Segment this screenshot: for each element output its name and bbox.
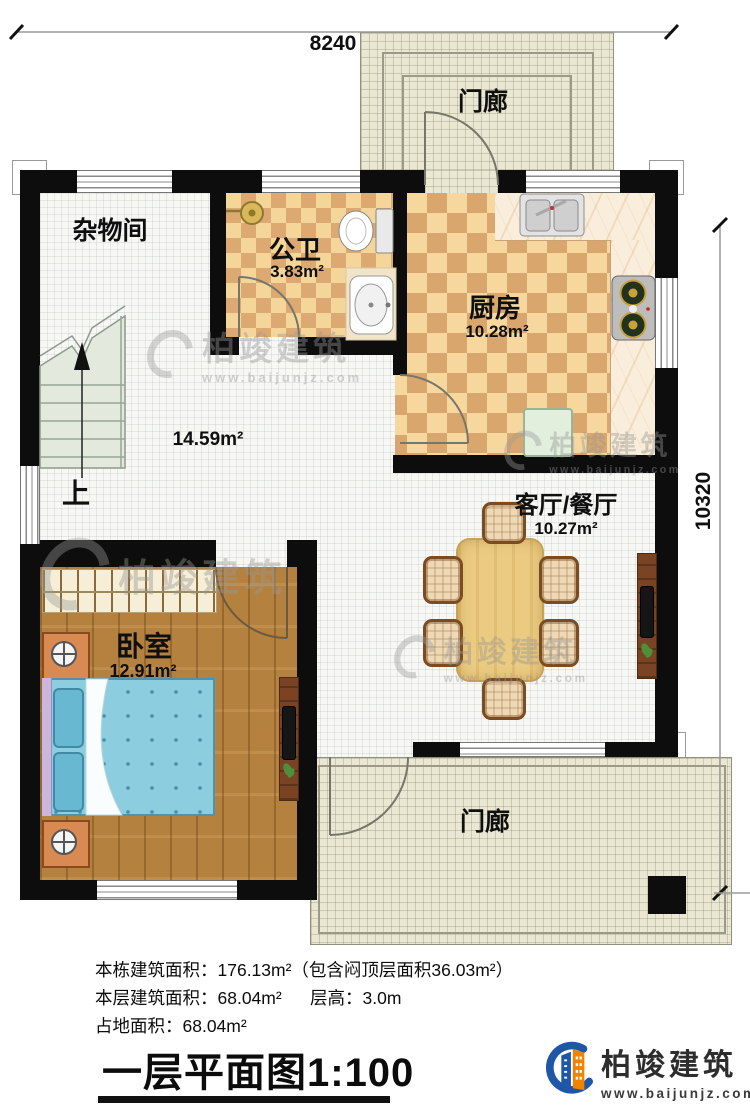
info-footprint: 占地面积：68.04m² — [95, 1013, 247, 1038]
dimension-top-label: 8240 — [293, 33, 373, 55]
room-label-bathroom: 公卫 — [255, 237, 335, 264]
room-label-porch-bottom: 门廊 — [435, 809, 535, 835]
kitchen-sink-icon — [520, 194, 584, 236]
room-label-kitchen: 厨房 — [445, 295, 545, 322]
info-total-area: 本栋建筑面积：176.13m²（包含闷顶层面积36.03m²） — [95, 957, 513, 982]
stove-icon — [612, 276, 655, 340]
room-label-porch-top: 门廊 — [433, 89, 533, 115]
bathroom-door — [239, 277, 299, 337]
brand-logo: 柏竣建筑 www.baijunjz.com — [545, 1040, 750, 1101]
lamp-icon — [52, 642, 76, 854]
porch-door — [330, 757, 408, 835]
room-area-hall: 14.59m² — [148, 429, 268, 451]
room-label-bedroom: 卧室 — [94, 632, 194, 661]
plan-linework — [0, 0, 750, 950]
plant-icon — [281, 642, 654, 779]
title-underline — [98, 1096, 390, 1103]
brand-website: www.baijunjz.com — [601, 1086, 750, 1101]
shower-head-icon — [226, 202, 263, 224]
washbasin-icon — [346, 268, 396, 340]
kitchen-door — [400, 375, 468, 443]
bed-blanket — [86, 679, 122, 815]
room-label-storage: 杂物间 — [55, 218, 165, 244]
dimension-line-right — [713, 218, 750, 900]
bedroom-door — [216, 567, 287, 638]
toilet-icon — [339, 209, 393, 253]
room-area-living-dining: 10.27m² — [506, 519, 626, 539]
stairs-up-label: 上 — [56, 479, 96, 508]
info-floor-height: 层高：3.0m — [310, 985, 401, 1010]
brand-company-name: 柏竣建筑 — [601, 1040, 750, 1084]
dimension-right-label: 10320 — [693, 465, 715, 537]
room-label-living-dining: 客厅/餐厅 — [486, 493, 646, 518]
floor-plan: 柏竣建筑 www.baijunjz.com 柏竣建筑 www.baijunjz.… — [0, 0, 750, 1113]
room-area-bedroom: 12.91m² — [83, 661, 203, 682]
staircase — [40, 306, 125, 478]
room-area-kitchen: 10.28m² — [437, 322, 557, 342]
page-title: 一层平面图1:100 — [102, 1040, 414, 1098]
info-floor-area: 本层建筑面积：68.04m² — [95, 985, 282, 1010]
room-area-bathroom: 3.83m² — [247, 262, 347, 282]
brand-logo-icon — [545, 1040, 593, 1098]
entry-door — [425, 112, 498, 185]
